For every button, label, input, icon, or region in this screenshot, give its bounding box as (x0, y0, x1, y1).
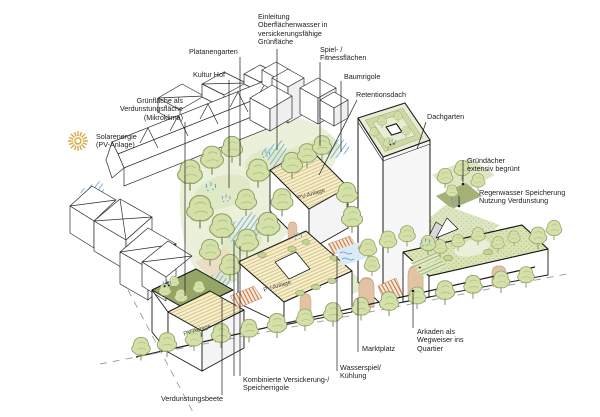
label-gruendaecher: Gründächer extensiv begrünt (467, 157, 520, 174)
label-versickerung: Kombinierte Versickerung-/ Speicherrigol… (243, 376, 329, 393)
label-spiel-fitness: Spiel- / Fitnessflächen (320, 46, 366, 63)
site-diagram: Einleitung Oberflächenwasser in versicke… (0, 0, 600, 417)
sun-icon (68, 131, 88, 151)
label-kultur-hof: Kultur Hof (193, 71, 225, 79)
label-dachgarten: Dachgarten (427, 113, 464, 121)
label-solarenergie: Solarenergie (PV-Anlage) (96, 133, 137, 150)
label-gruenflaeche: Grünfläche als Verdunstungsfläche (Mikro… (120, 97, 183, 122)
label-baumrigole: Baumrigole (344, 73, 380, 81)
label-platanengarten: Platanengarten (189, 48, 238, 56)
site-axonometric-illustration (0, 0, 600, 417)
label-arkaden: Arkaden als Wegweiser ins Quartier (417, 328, 464, 353)
label-regenwasser: Regenwasser Speicherung Nutzung Verdunst… (479, 189, 565, 206)
label-wasserspiel: Wasserspiel/ Kühlung (340, 364, 381, 381)
label-verdunstungsbeete: Verdunstungsbeete (161, 395, 223, 403)
label-marktplatz: Marktplatz (362, 345, 395, 353)
label-retentionsdach: Retentionsdach (356, 91, 406, 99)
label-einleitung: Einleitung Oberflächenwasser in versicke… (258, 13, 328, 47)
